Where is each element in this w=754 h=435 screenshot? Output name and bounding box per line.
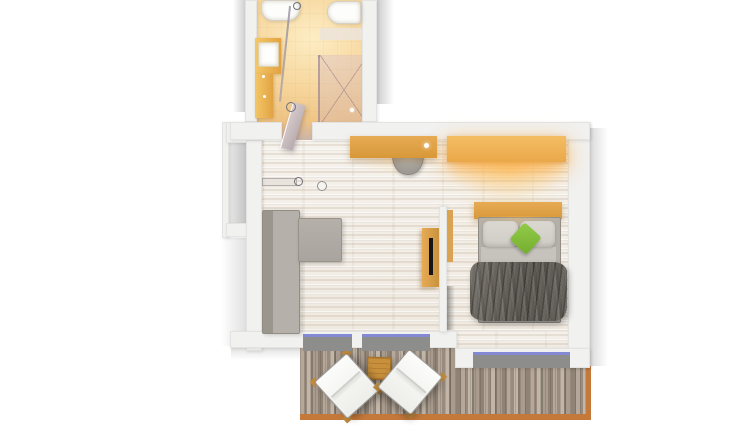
balcony-window-door-right: [362, 334, 430, 351]
deck-border-right: [586, 366, 591, 420]
counter-spot-dot: [262, 75, 265, 78]
outside-shadow-below-living: [231, 348, 301, 360]
toilet-step: [320, 28, 362, 40]
counter-basin: [258, 42, 279, 67]
bathroom-right-wall: [362, 0, 377, 122]
bedroom-window: [473, 352, 570, 368]
outside-shadow-right-of-bedroom: [590, 128, 608, 366]
outside-shadow-right-of-bathroom: [377, 0, 394, 104]
floor-plan-canvas: [0, 0, 754, 435]
partition-wood-strip: [447, 210, 453, 262]
entry-door-open: [262, 178, 297, 186]
entry-door-handle: [294, 177, 303, 186]
toilet: [327, 1, 361, 24]
shower-head-dot: [293, 2, 301, 10]
counter-spot-dot: [263, 95, 266, 98]
shower-drain-dot: [350, 108, 354, 112]
top-wall-left: [230, 122, 282, 140]
desk-spotlight-dot: [424, 143, 429, 148]
corner-sofa-main: [262, 210, 300, 334]
outside-shadow-left-of-living: [221, 238, 246, 346]
corner-sofa-chaise: [298, 218, 342, 262]
tv-partition-wall: [439, 206, 447, 332]
shower-area: [318, 55, 368, 125]
partition-floor-shadow: [447, 286, 455, 330]
right-wall: [568, 122, 590, 368]
balcony-window-door-left: [303, 334, 352, 351]
duvet: [470, 262, 567, 321]
illuminated-panel: [447, 136, 566, 162]
left-wall: [246, 140, 262, 351]
tv: [429, 238, 433, 275]
bathroom-door-handle: [286, 102, 296, 112]
decor-bowl: [317, 181, 327, 191]
